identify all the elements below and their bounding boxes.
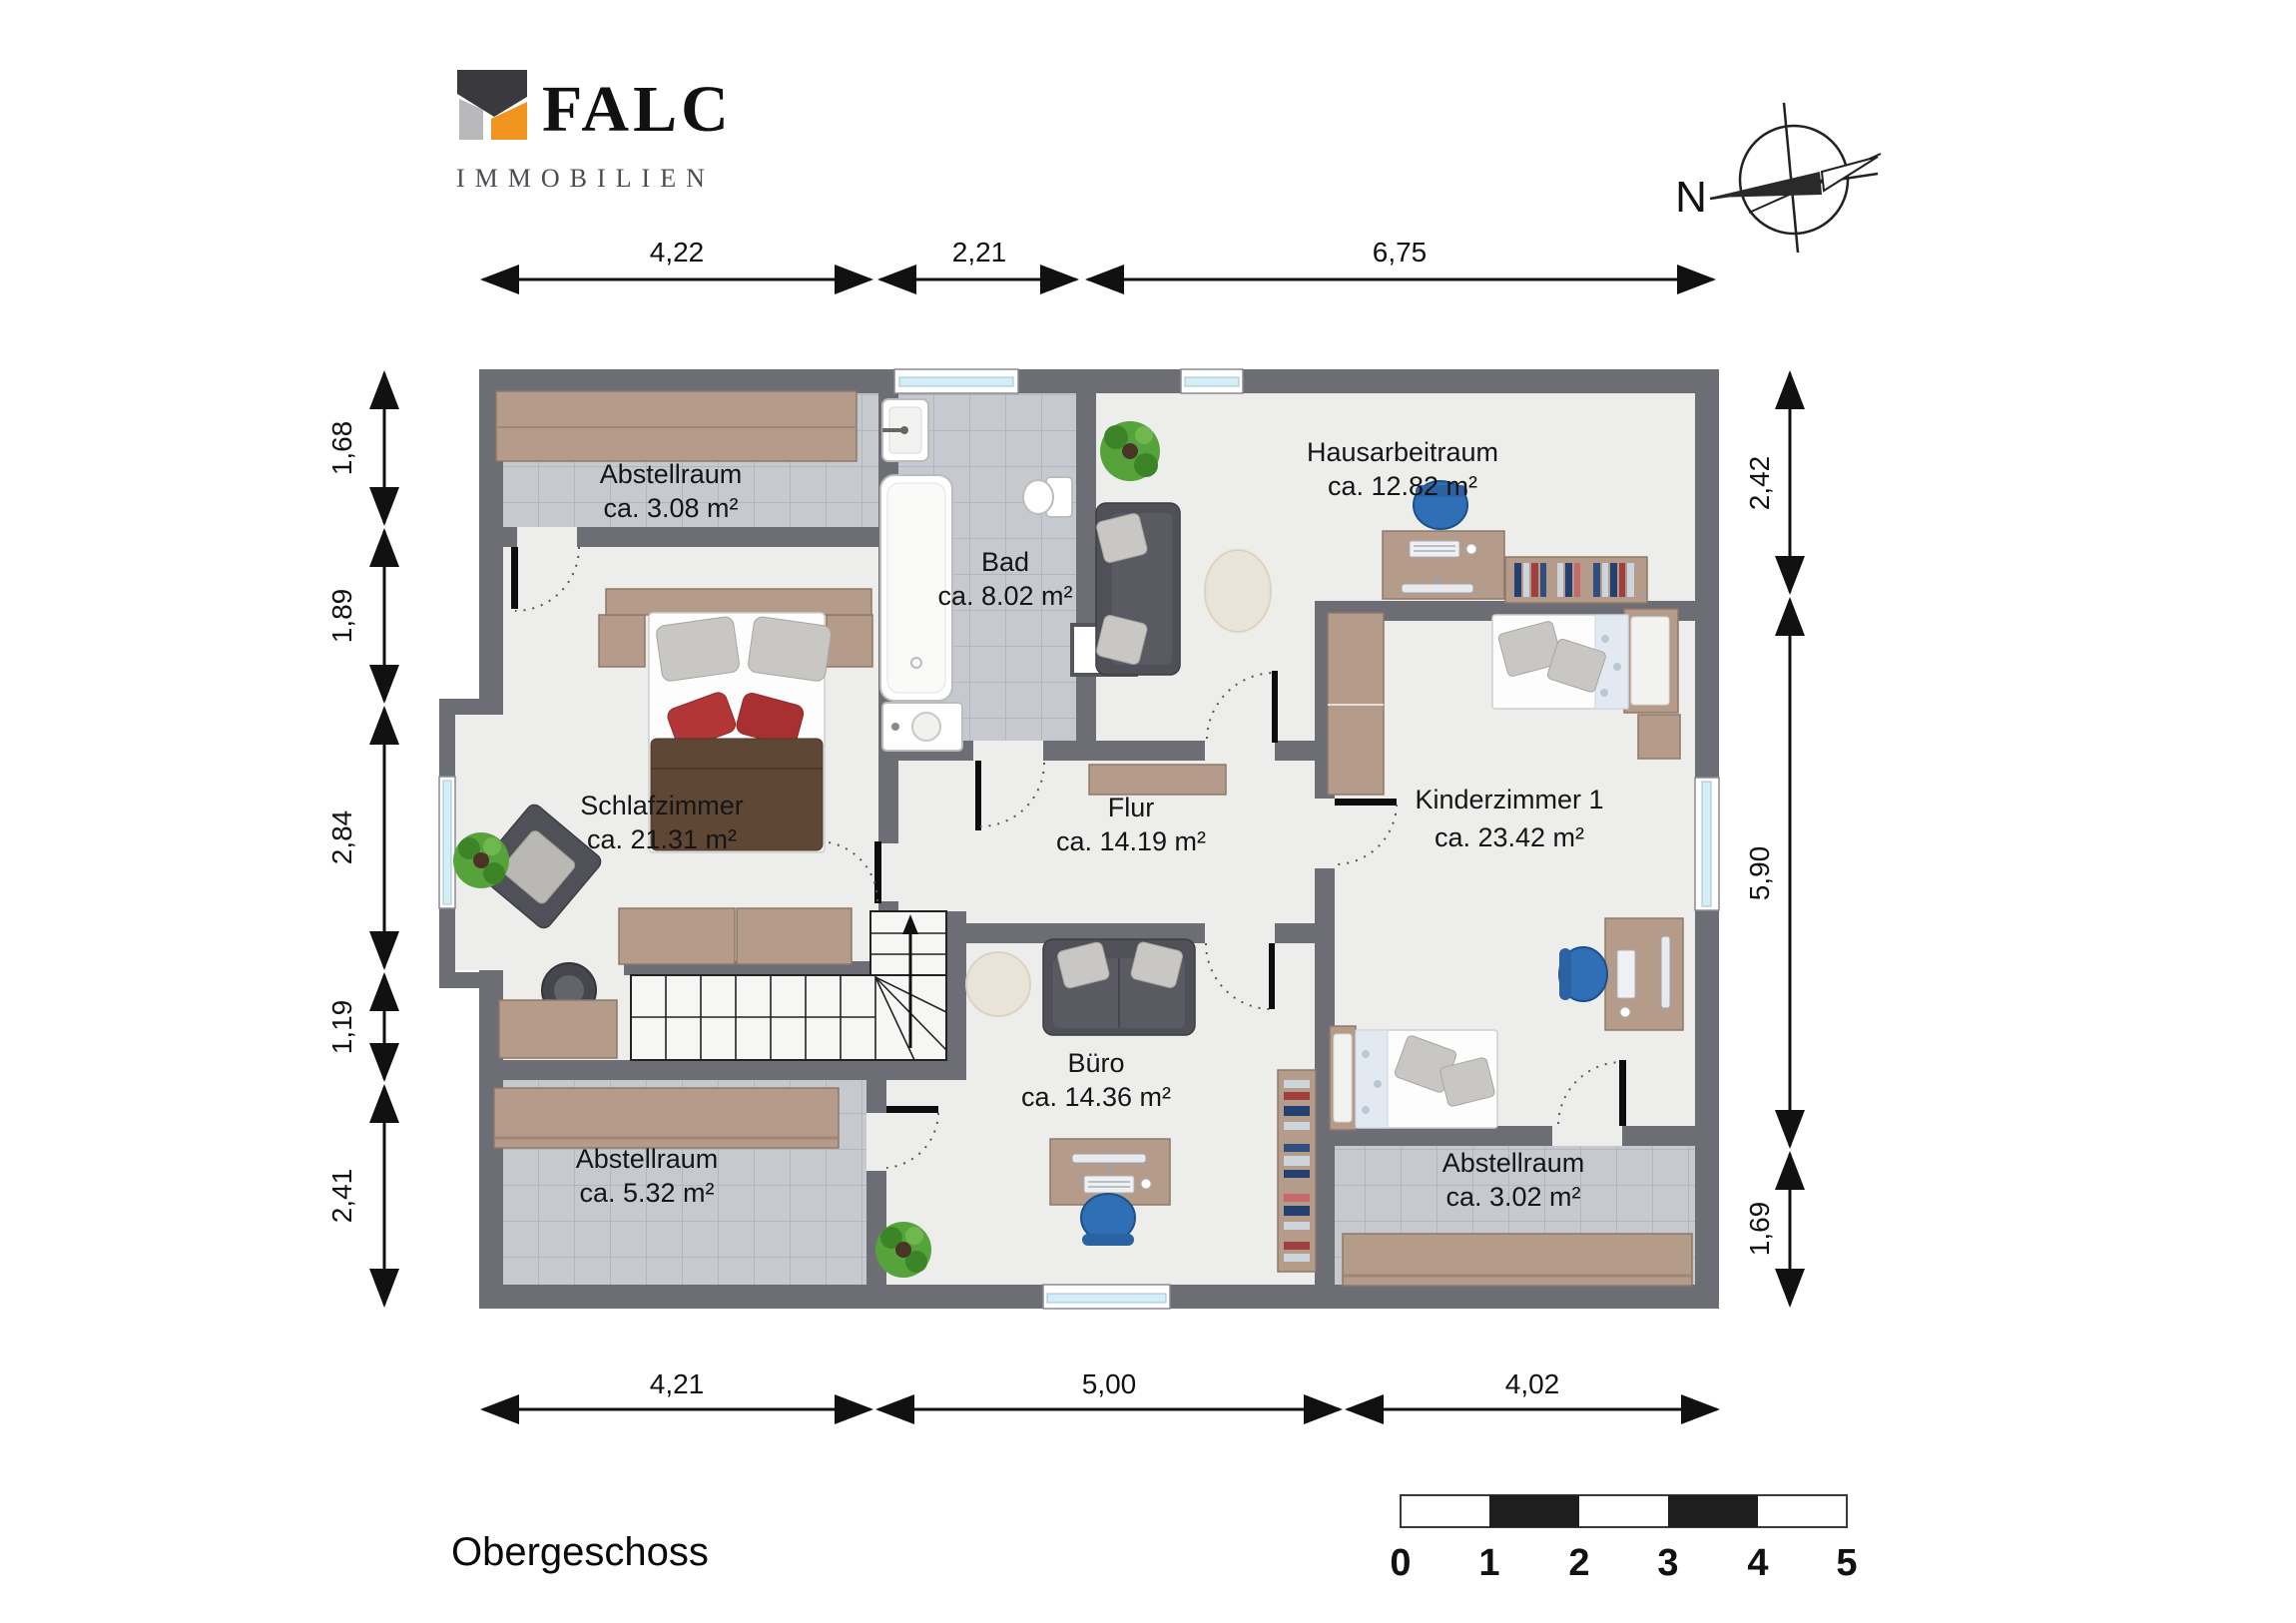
label-abstellraum3-area: ca. 3.02 m² [1445,1182,1580,1212]
window-kinderzimmer-right [1695,778,1719,910]
wall-buero-top-right [1275,923,1315,943]
wall-kinderzimmer-abstellraum3-left [1335,1126,1552,1146]
window-bay-left [439,777,455,908]
wall-bad-bottom-right [1043,741,1098,761]
floorplan-page: FALC IMMOBILIEN N [0,0,2296,1623]
floorplan-canvas: FALC IMMOBILIEN N [0,0,2296,1623]
scale-tick-0: 0 [1390,1542,1411,1584]
sink-bad-top [882,399,928,461]
compass-north-label: N [1675,173,1707,222]
rug-buero [966,952,1030,1016]
wall-bay-bottom [439,972,503,988]
sofa-hausarbeitraum [1095,503,1180,675]
nightstand-kinderzimmer [1638,715,1680,759]
dresser-right [737,908,852,964]
dim-bottom-1: 4,21 [650,1368,705,1399]
wall-hausarbeitraum-flur-left [1096,741,1205,761]
plant-buero [875,1222,931,1278]
plant-schlafzimmer [453,832,509,888]
compass-icon: N [1675,103,1881,253]
wardrobe-abstellraum1 [496,391,857,461]
wall-under-stairs [479,1060,966,1080]
label-abstellraum1-area: ca. 3.08 m² [603,493,738,523]
logo-subtext: IMMOBILIEN [456,164,715,193]
office-chair-kinderzimmer [1559,947,1607,1001]
dim-left-3: 2,84 [326,811,357,865]
nightstand-left [599,615,645,667]
window-buero-bottom [1043,1285,1170,1309]
scale-tick-2: 2 [1568,1542,1589,1584]
scale-tick-5: 5 [1836,1542,1857,1584]
label-kinderzimmer-name: Kinderzimmer 1 [1415,785,1603,814]
dim-left-2: 1,89 [326,589,357,644]
label-flur-name: Flur [1108,793,1155,822]
label-abstellraum2-name: Abstellraum [576,1144,719,1174]
label-schlafzimmer-name: Schlafzimmer [580,791,744,820]
label-hausarbeitraum-area: ca. 12.82 m² [1328,471,1477,501]
wall-kinderzimmer-abstellraum3-right [1622,1126,1719,1146]
label-hausarbeitraum-name: Hausarbeitraum [1307,437,1498,467]
label-bad-name: Bad [981,547,1029,577]
bookshelf-buero-wall [1278,1070,1316,1272]
dim-top-2: 2,21 [952,237,1007,268]
dim-bottom-3: 4,02 [1505,1368,1560,1399]
dim-left-4: 1,19 [326,1000,357,1055]
scale-bar: 0 1 2 3 4 5 [1390,1495,1857,1584]
dresser-left [619,908,735,964]
scale-tick-3: 3 [1657,1542,1678,1584]
dim-right-1: 2,42 [1744,456,1775,511]
sofa-buero [1043,939,1195,1035]
scale-tick-1: 1 [1478,1542,1499,1584]
floor-title: Obergeschoss [451,1530,709,1574]
dim-bottom-2: 5,00 [1082,1368,1137,1399]
desk-hausarbeitraum [1383,531,1504,599]
label-abstellraum2-area: ca. 5.32 m² [579,1178,714,1208]
plant-hausarbeitraum [1100,421,1160,481]
label-schlafzimmer-area: ca. 21.31 m² [587,824,737,854]
falc-logo-icon: FALC IMMOBILIEN [456,70,733,193]
dim-left-5: 2,41 [326,1169,357,1224]
vanity-bad [882,703,962,751]
dim-left-1: 1,68 [326,421,357,476]
wall-bad-hausarbeitraum [1076,393,1096,741]
dim-right-3: 1,69 [1744,1202,1775,1257]
label-abstellraum1-name: Abstellraum [600,459,743,489]
bookshelf-hausarbeitraum [1505,557,1647,603]
label-buero-area: ca. 14.36 m² [1021,1082,1171,1112]
bed-kinderzimmer-1 [1492,609,1678,713]
window-hausarbeitraum-top [1181,369,1243,393]
label-flur-area: ca. 14.19 m² [1056,826,1206,856]
wall-stairs-right [946,911,966,1080]
wardrobe-kinderzimmer [1328,613,1384,795]
logo-text: FALC [542,73,733,146]
office-chair-buero [1081,1194,1135,1246]
sideboard-abstellraum2 [494,1088,839,1148]
rug-hausarbeitraum [1205,550,1271,632]
label-bad-area: ca. 8.02 m² [937,581,1072,611]
desk-schlafzimmer [499,1000,617,1058]
nightstand-right [827,615,872,667]
scale-tick-4: 4 [1747,1542,1768,1584]
label-kinderzimmer-area: ca. 23.42 m² [1435,822,1584,852]
toilet-bad [1023,477,1072,517]
sideboard-abstellraum3 [1343,1234,1692,1286]
label-buero-name: Büro [1067,1048,1124,1078]
desk-kinderzimmer [1605,918,1683,1030]
wall-abstellraum1-bottom [577,527,898,547]
label-abstellraum3-name: Abstellraum [1442,1148,1585,1178]
dim-top-1: 4,22 [650,237,705,268]
dim-right-2: 5,90 [1744,846,1775,901]
wall-exterior-top [479,369,1719,393]
bed-kinderzimmer-2 [1330,1026,1497,1130]
bed-headboard [606,589,871,615]
dim-top-3: 6,75 [1373,237,1428,268]
window-bad-top [894,369,1018,393]
sideboard-flur [1089,765,1226,795]
wall-bay-top [439,699,503,715]
